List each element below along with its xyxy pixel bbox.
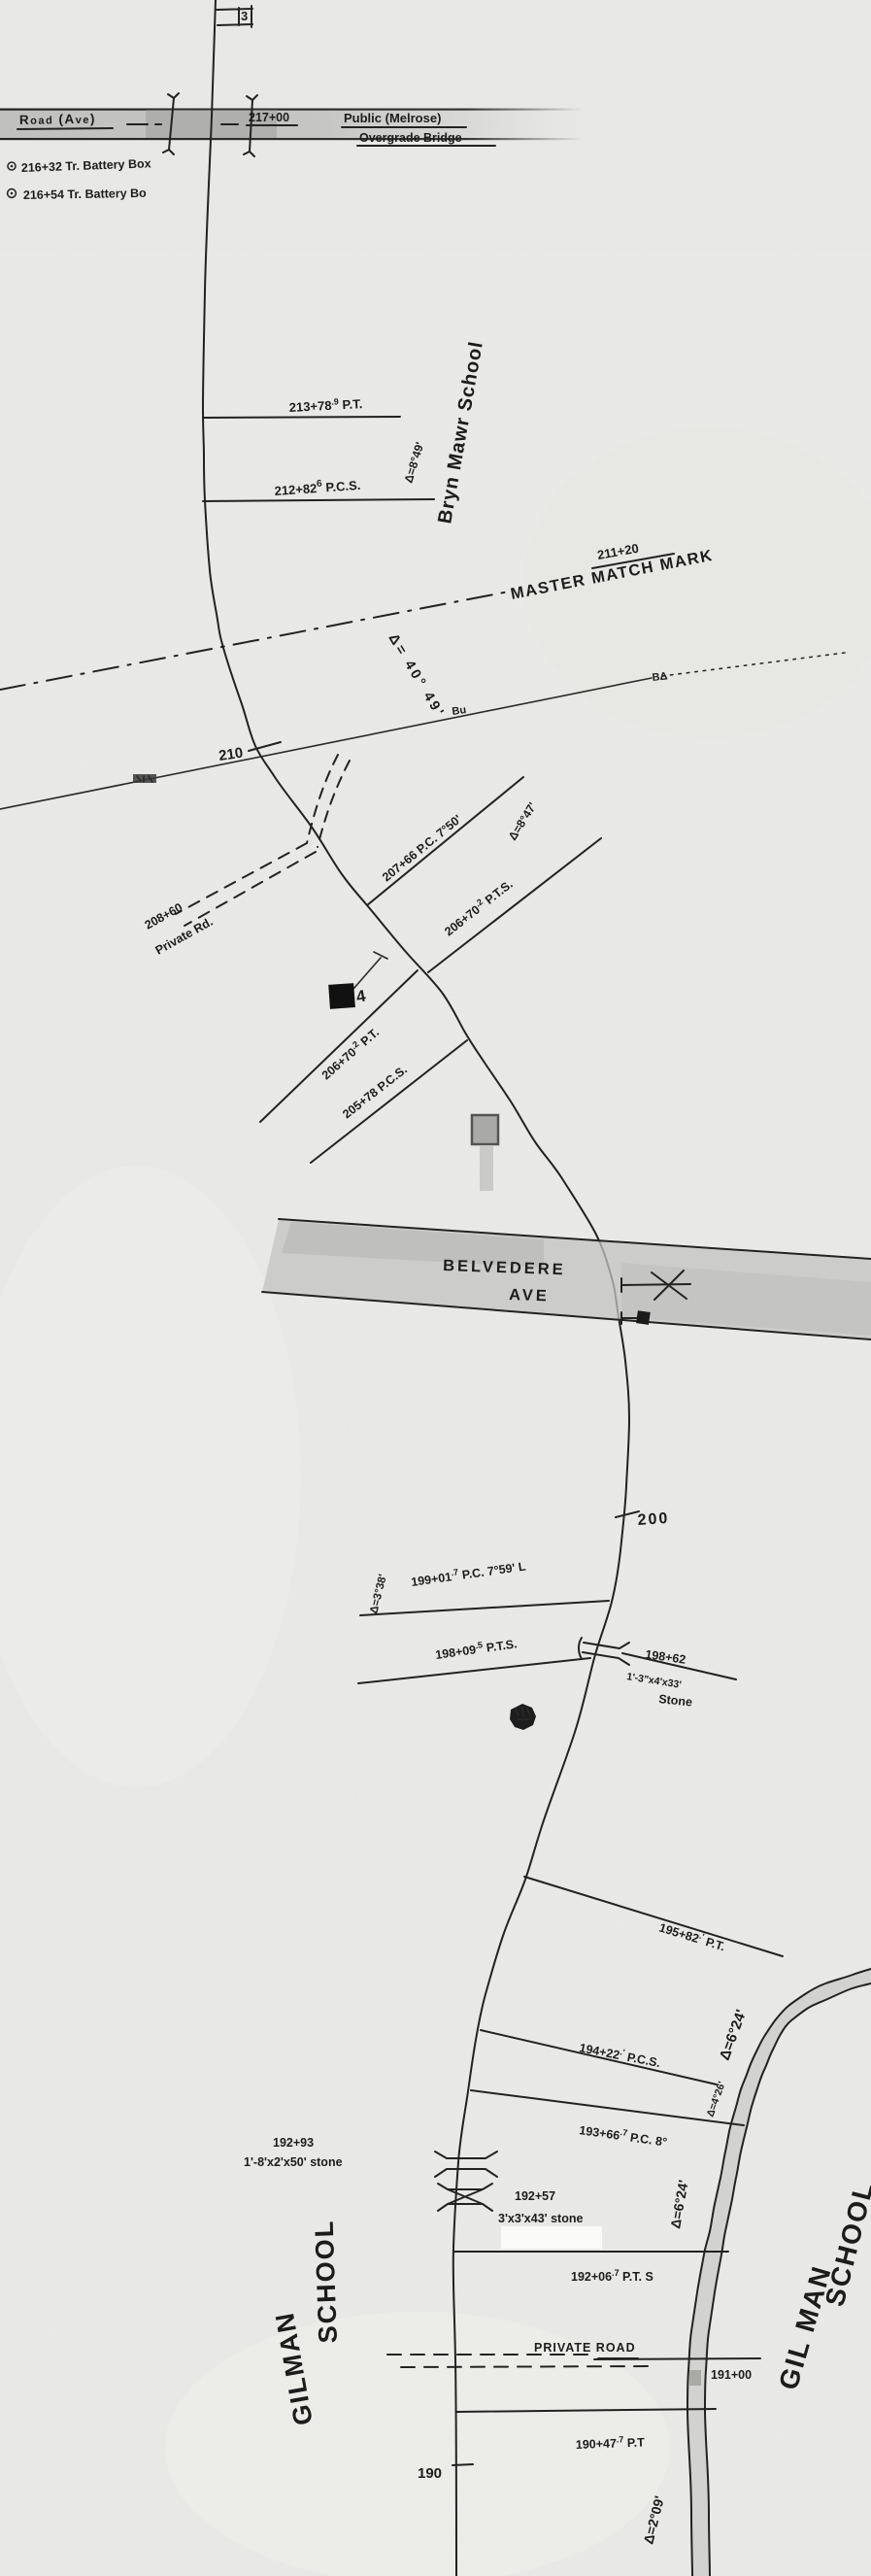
svg-text:PRIVATE ROAD: PRIVATE ROAD (534, 2341, 636, 2355)
svg-text:192+93: 192+93 (273, 2136, 314, 2150)
svg-text:SCHOOL: SCHOOL (310, 2219, 343, 2343)
svg-text:BΔ: BΔ (652, 670, 668, 684)
svg-text:192+57: 192+57 (515, 2189, 555, 2203)
svg-text:AVE: AVE (509, 1286, 550, 1305)
svg-text:200: 200 (637, 1510, 670, 1529)
svg-text:Bu: Bu (452, 704, 467, 718)
svg-text:3'x3'x43' stone: 3'x3'x43' stone (498, 2212, 583, 2225)
svg-text:1'-8'x2'x50' stone: 1'-8'x2'x50' stone (244, 2155, 343, 2169)
svg-text:Overgrade Bridge: Overgrade Bridge (359, 131, 462, 145)
svg-text:Public (Melrose): Public (Melrose) (344, 111, 441, 125)
svg-text:216+54 Tr. Battery Bo: 216+54 Tr. Battery Bo (23, 186, 147, 202)
svg-text:3: 3 (241, 9, 248, 23)
svg-text:217+00: 217+00 (249, 111, 289, 124)
svg-text:190: 190 (418, 2465, 442, 2482)
svg-text:210: 210 (218, 745, 244, 764)
svg-text:191+00: 191+00 (711, 2368, 752, 2382)
